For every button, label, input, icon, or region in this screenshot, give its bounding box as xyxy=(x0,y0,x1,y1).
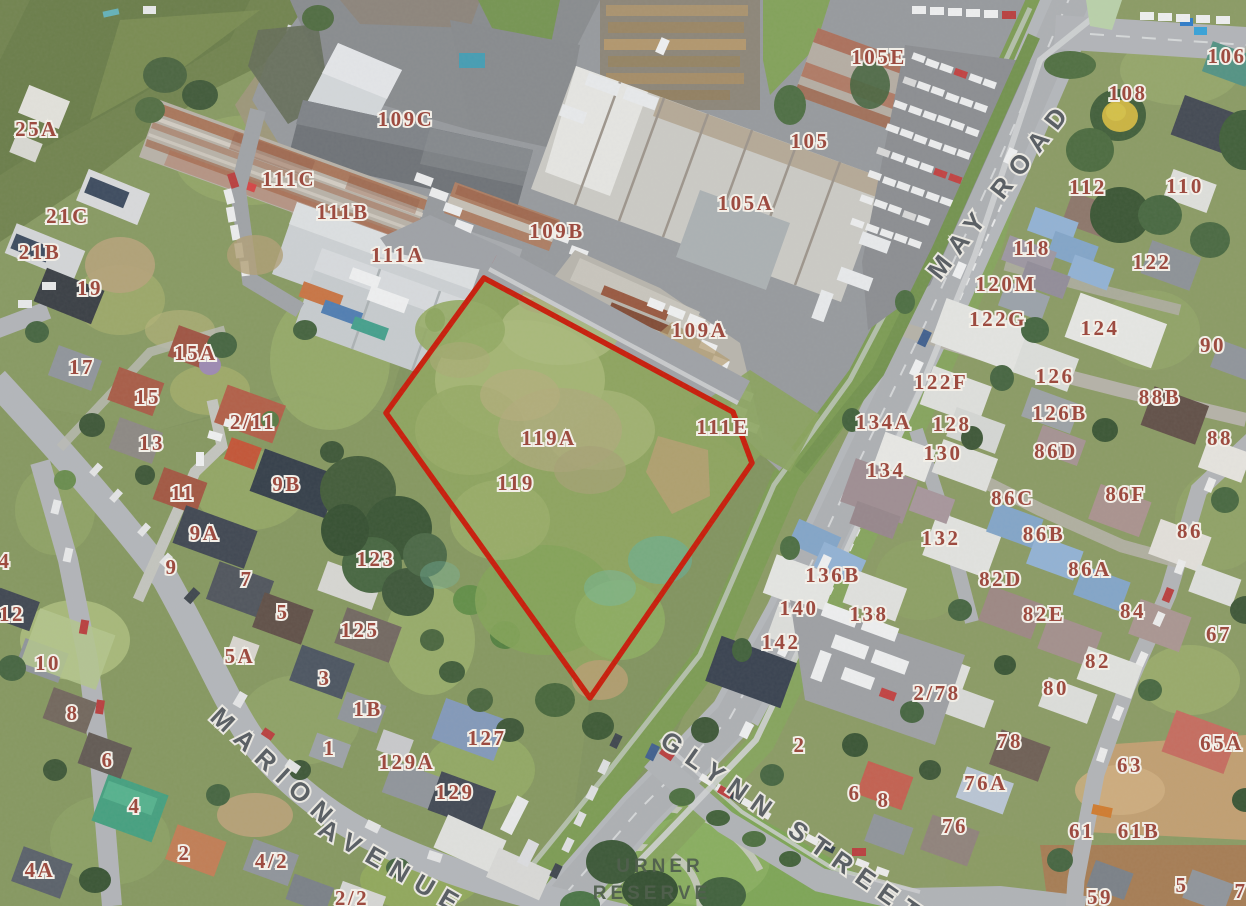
svg-text:1B: 1B xyxy=(353,697,383,721)
svg-text:21C: 21C xyxy=(46,204,90,228)
svg-text:125: 125 xyxy=(341,618,380,642)
svg-text:4A: 4A xyxy=(25,858,56,882)
svg-text:126: 126 xyxy=(1036,364,1075,388)
svg-text:2: 2 xyxy=(794,733,807,757)
svg-text:67: 67 xyxy=(1206,622,1232,646)
svg-text:2: 2 xyxy=(179,841,192,865)
svg-text:9A: 9A xyxy=(190,521,221,545)
svg-text:78: 78 xyxy=(997,729,1023,753)
svg-text:25A: 25A xyxy=(15,117,59,141)
svg-text:5A: 5A xyxy=(225,644,256,668)
svg-text:5: 5 xyxy=(277,600,290,624)
svg-text:1: 1 xyxy=(324,736,337,760)
svg-text:134A: 134A xyxy=(856,410,913,434)
svg-text:123: 123 xyxy=(357,547,396,571)
svg-text:84: 84 xyxy=(1120,599,1146,623)
svg-text:61B: 61B xyxy=(1118,819,1161,843)
svg-text:63: 63 xyxy=(1117,753,1143,777)
svg-text:134: 134 xyxy=(867,458,906,482)
svg-text:110: 110 xyxy=(1166,174,1204,198)
svg-text:3: 3 xyxy=(319,666,332,690)
svg-text:13: 13 xyxy=(139,431,165,455)
svg-text:76A: 76A xyxy=(964,771,1008,795)
svg-text:2/2: 2/2 xyxy=(335,886,369,906)
svg-text:129: 129 xyxy=(436,780,475,804)
svg-text:86D: 86D xyxy=(1034,439,1078,463)
svg-text:88: 88 xyxy=(1207,426,1233,450)
svg-text:130: 130 xyxy=(924,441,963,465)
svg-text:7: 7 xyxy=(241,567,254,591)
svg-text:7: 7 xyxy=(1235,879,1246,903)
svg-text:142: 142 xyxy=(762,630,801,654)
svg-text:9B: 9B xyxy=(272,472,302,496)
svg-text:8: 8 xyxy=(67,701,80,725)
svg-text:111A: 111A xyxy=(371,243,425,267)
svg-text:82: 82 xyxy=(1085,649,1111,673)
svg-text:109A: 109A xyxy=(672,318,729,342)
svg-text:118: 118 xyxy=(1013,236,1051,260)
svg-text:59: 59 xyxy=(1087,885,1113,906)
svg-text:129A: 129A xyxy=(379,750,436,774)
svg-text:2/78: 2/78 xyxy=(913,681,960,705)
svg-text:2/11: 2/11 xyxy=(230,410,276,434)
svg-text:86C: 86C xyxy=(991,486,1035,510)
svg-text:4: 4 xyxy=(0,549,12,573)
svg-text:109B: 109B xyxy=(529,219,585,243)
svg-text:15A: 15A xyxy=(174,341,218,365)
svg-text:11: 11 xyxy=(171,481,196,505)
svg-text:82E: 82E xyxy=(1023,602,1066,626)
svg-text:URNER: URNER xyxy=(616,856,704,877)
svg-text:111E: 111E xyxy=(696,415,749,439)
svg-text:6: 6 xyxy=(102,748,115,772)
svg-text:105: 105 xyxy=(791,129,830,153)
svg-text:111C: 111C xyxy=(262,167,316,191)
svg-text:86B: 86B xyxy=(1023,522,1066,546)
svg-text:88B: 88B xyxy=(1139,385,1182,409)
svg-text:122: 122 xyxy=(1133,250,1172,274)
svg-text:136B: 136B xyxy=(805,563,861,587)
svg-text:106: 106 xyxy=(1208,44,1246,68)
svg-text:80: 80 xyxy=(1043,676,1069,700)
svg-text:122F: 122F xyxy=(914,370,968,394)
svg-text:128: 128 xyxy=(933,412,972,436)
svg-text:122G: 122G xyxy=(969,307,1027,331)
svg-text:65A: 65A xyxy=(1200,731,1244,755)
svg-text:6: 6 xyxy=(849,781,862,805)
svg-text:61: 61 xyxy=(1069,819,1095,843)
svg-text:86A: 86A xyxy=(1068,557,1112,581)
svg-text:12: 12 xyxy=(0,602,25,626)
svg-text:105E: 105E xyxy=(851,45,907,69)
svg-text:138: 138 xyxy=(850,602,889,626)
svg-text:9: 9 xyxy=(166,555,179,579)
svg-text:124: 124 xyxy=(1081,316,1120,340)
svg-text:140: 140 xyxy=(780,596,819,620)
svg-text:86F: 86F xyxy=(1105,482,1146,506)
svg-text:15: 15 xyxy=(135,385,161,409)
svg-text:108: 108 xyxy=(1109,81,1148,105)
svg-text:86: 86 xyxy=(1177,519,1203,543)
svg-text:119: 119 xyxy=(497,471,535,495)
svg-text:21B: 21B xyxy=(19,240,62,264)
svg-text:RESERVE: RESERVE xyxy=(593,883,711,904)
svg-text:17: 17 xyxy=(69,355,95,379)
svg-text:10: 10 xyxy=(35,651,61,675)
svg-text:119A: 119A xyxy=(521,426,577,450)
svg-text:111B: 111B xyxy=(316,200,369,224)
svg-text:126B: 126B xyxy=(1032,401,1088,425)
svg-text:4/2: 4/2 xyxy=(255,849,289,873)
svg-text:112: 112 xyxy=(1069,175,1107,199)
svg-text:132: 132 xyxy=(922,526,961,550)
svg-text:127: 127 xyxy=(468,726,507,750)
svg-text:82D: 82D xyxy=(979,567,1023,591)
svg-text:5: 5 xyxy=(1176,873,1189,897)
svg-text:76: 76 xyxy=(942,814,968,838)
svg-text:8: 8 xyxy=(878,788,891,812)
svg-text:90: 90 xyxy=(1200,333,1226,357)
svg-text:105A: 105A xyxy=(718,191,775,215)
svg-text:19: 19 xyxy=(77,276,103,300)
svg-text:109C: 109C xyxy=(378,107,435,131)
svg-text:4: 4 xyxy=(129,794,142,818)
svg-text:120M: 120M xyxy=(975,272,1036,296)
